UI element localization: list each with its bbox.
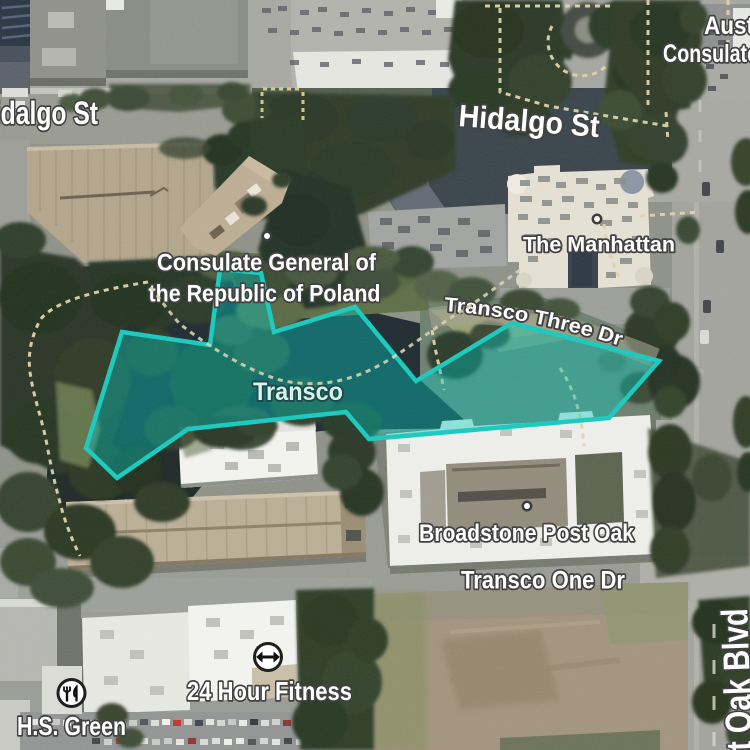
svg-text:Broadstone Post Oak: Broadstone Post Oak xyxy=(419,520,635,547)
svg-text:Austin: Austin xyxy=(704,12,750,40)
svg-text:Consulate General of: Consulate General of xyxy=(157,250,377,277)
svg-text:Post Oak Blvd: Post Oak Blvd xyxy=(714,608,750,750)
svg-text:The Manhattan: The Manhattan xyxy=(523,234,675,257)
svg-text:the Republic of Poland: the Republic of Poland xyxy=(149,281,381,308)
svg-text:Consulate: Consulate xyxy=(663,40,750,68)
svg-text:24 Hour Fitness: 24 Hour Fitness xyxy=(187,676,352,706)
svg-text:Hidalgo St: Hidalgo St xyxy=(0,95,98,131)
svg-text:Transco One Dr: Transco One Dr xyxy=(461,567,625,595)
svg-text:H.S. Green: H.S. Green xyxy=(17,711,126,741)
